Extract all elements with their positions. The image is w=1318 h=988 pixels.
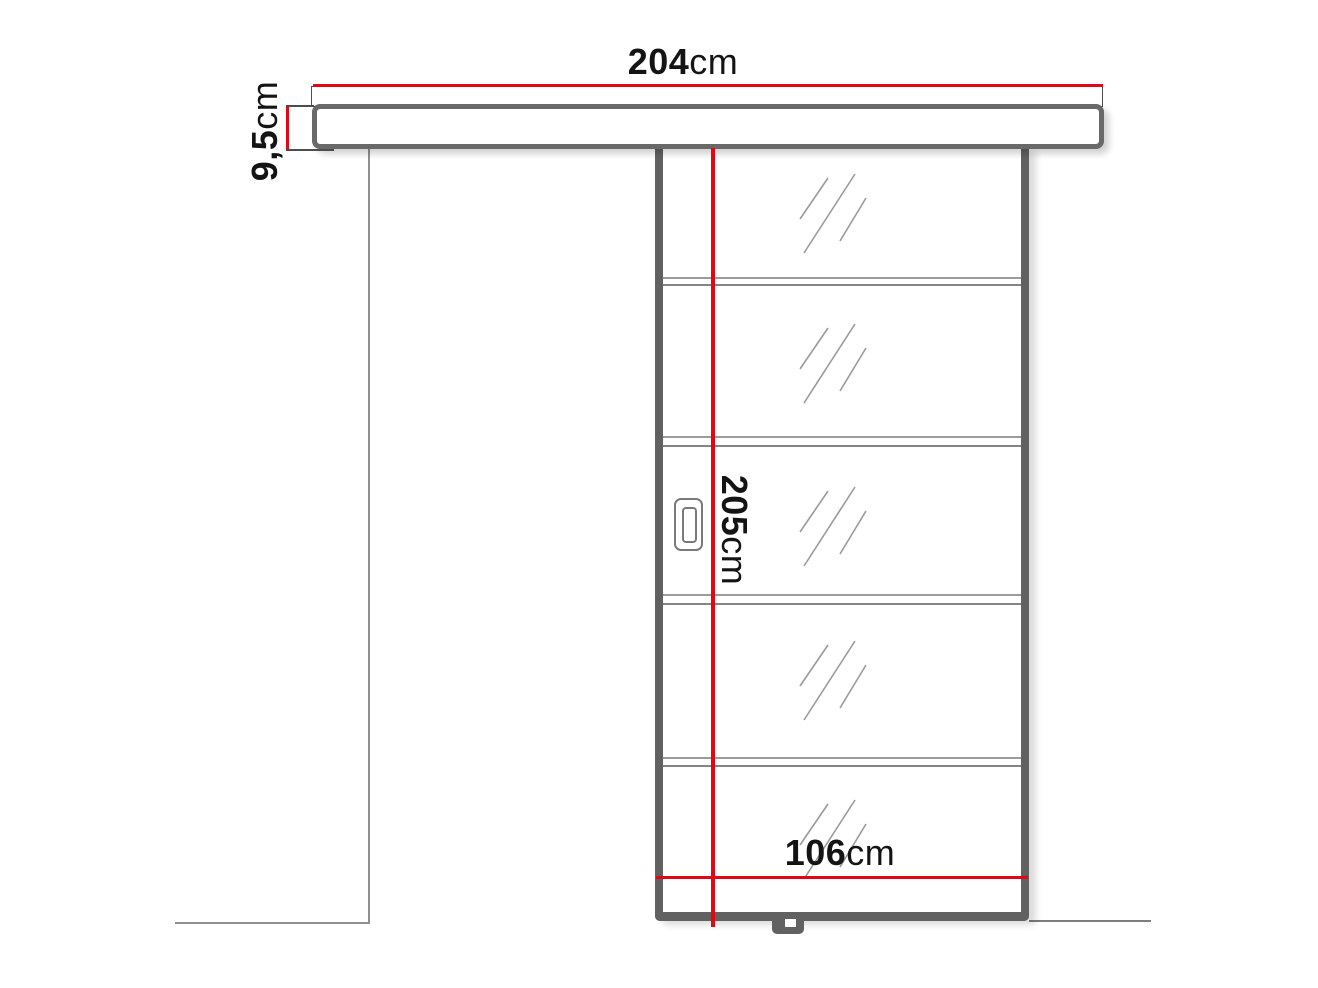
dimension-label-door-height: 205cm [713, 460, 753, 600]
dimension-label-door-width: 106cm [755, 834, 925, 872]
glass-reflection-icon [795, 638, 875, 723]
dimension-unit: cm [689, 41, 738, 82]
dimension-value: 204 [628, 41, 690, 82]
dimension-unit: cm [244, 81, 285, 130]
floor-guide-notch [785, 919, 796, 927]
floor-line-right [1029, 920, 1151, 922]
glass-divider [663, 603, 1021, 605]
dimension-unit: cm [714, 536, 755, 585]
glass-divider [663, 436, 1021, 438]
glass-divider [663, 757, 1021, 759]
glass-reflection-icon [795, 321, 875, 406]
glass-divider [663, 765, 1021, 767]
floor-line-left [175, 922, 370, 924]
glass-divider [663, 445, 1021, 447]
wall-reference-line [368, 149, 370, 923]
glass-divider [663, 277, 1021, 279]
track-rail [312, 104, 1104, 149]
extension-line [286, 105, 314, 107]
extension-line [286, 149, 334, 151]
dimension-value: 205 [714, 475, 755, 537]
glass-reflection-icon [795, 171, 875, 256]
glass-reflection-icon [795, 484, 875, 569]
dimension-label-track-height: 9,5cm [246, 66, 286, 196]
door-handle-recess [682, 507, 697, 543]
dimension-line-door-width [656, 876, 1028, 879]
glass-divider [663, 284, 1021, 286]
dimension-value: 9,5 [244, 130, 285, 182]
dimension-value: 106 [785, 832, 847, 873]
dimension-unit: cm [846, 832, 895, 873]
dimension-line-track-width [313, 84, 1103, 87]
dimension-label-track-width: 204cm [603, 43, 763, 81]
dimension-line-track-height [286, 106, 289, 150]
sliding-door-diagram: 204cm 9,5cm 205cm 106cm [0, 0, 1318, 988]
